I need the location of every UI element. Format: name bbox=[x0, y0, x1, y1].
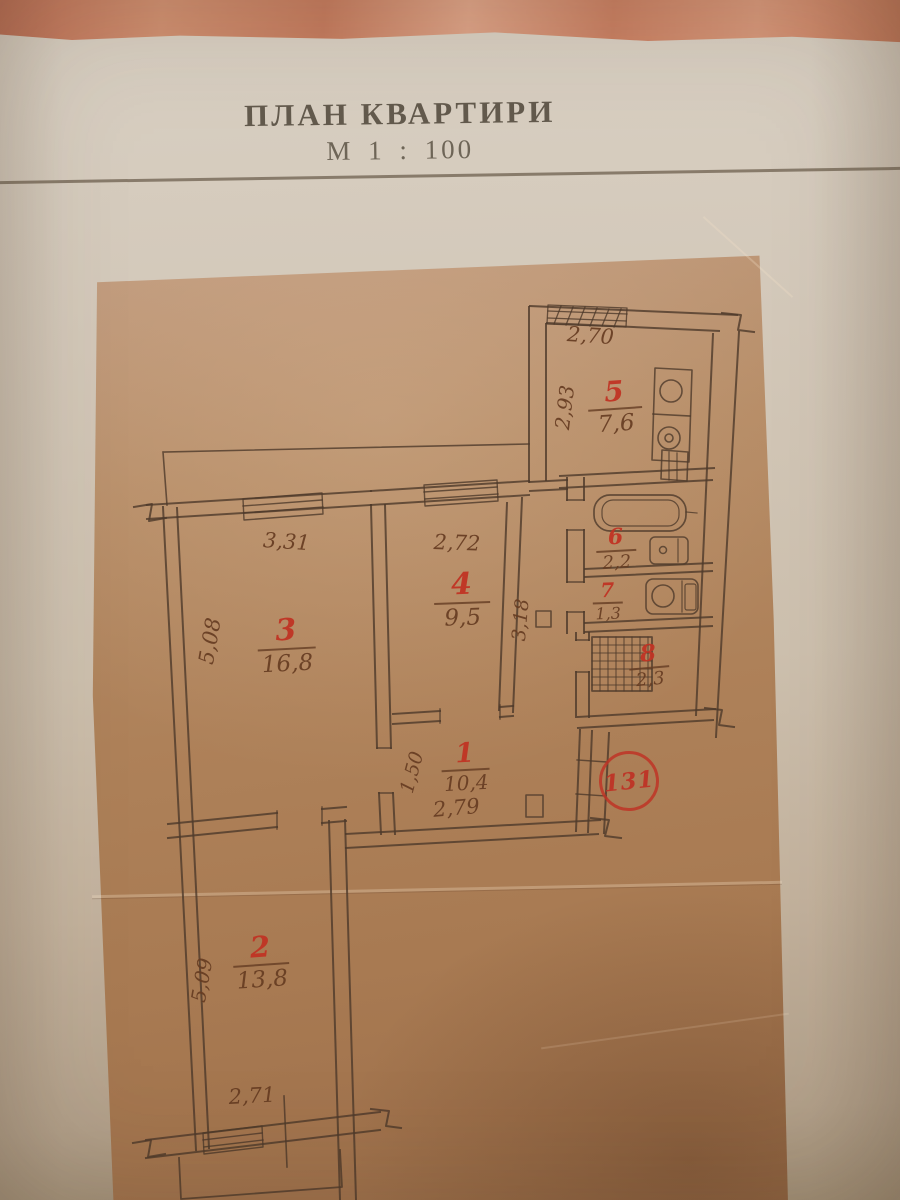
toilet-symbol bbox=[646, 579, 698, 614]
photo-of-floor-plan-document: ПЛАН КВАРТИРИ М 1 : 100 bbox=[0, 0, 900, 1200]
room-7-area: 1,3 bbox=[583, 605, 634, 624]
room-6-number: 6 bbox=[588, 525, 643, 550]
room-1-area: 10,4 bbox=[434, 771, 499, 795]
room-5-area: 7,6 bbox=[582, 410, 650, 439]
room-3-label: 3 16,8 bbox=[250, 614, 323, 678]
dim-hall-width: 2,79 bbox=[432, 794, 481, 822]
walls-room3 bbox=[134, 491, 395, 1150]
dim-kitchen-width: 2,70 bbox=[566, 322, 614, 349]
washbasin-symbol bbox=[650, 537, 688, 564]
room-8-label: 8 2,3 bbox=[620, 640, 678, 692]
room-6-area: 2,2 bbox=[590, 553, 645, 575]
room-2-label: 2 13,8 bbox=[224, 931, 298, 995]
room-1-number: 1 bbox=[432, 738, 497, 768]
dim-room3-width: 3,31 bbox=[262, 528, 310, 555]
dim-room4-depth: 3,18 bbox=[508, 598, 534, 642]
room-5-number: 5 bbox=[580, 376, 648, 409]
room-8-number: 8 bbox=[620, 640, 676, 668]
room-4-area: 9,5 bbox=[427, 605, 498, 632]
room-6-label: 6 2,2 bbox=[588, 525, 644, 575]
room-4-label: 4 9,5 bbox=[426, 569, 498, 632]
kitchen-sink-stove-symbol bbox=[652, 368, 692, 481]
room-3-area: 16,8 bbox=[252, 650, 323, 678]
room-5-label: 5 7,6 bbox=[580, 376, 650, 439]
room-4-number: 4 bbox=[426, 569, 497, 601]
room-2-area: 13,8 bbox=[227, 965, 299, 994]
walls-room2 bbox=[133, 820, 401, 1200]
balcony-outline bbox=[179, 1150, 342, 1199]
dim-room4-width: 2,72 bbox=[433, 530, 481, 556]
room-1-label: 1 10,4 bbox=[432, 738, 499, 795]
room-7-label: 7 1,3 bbox=[582, 579, 633, 624]
apartment-number: 131 bbox=[602, 765, 656, 797]
room-2-number: 2 bbox=[224, 931, 296, 965]
room-7-number: 7 bbox=[582, 579, 633, 601]
room-3-number: 3 bbox=[250, 614, 321, 648]
dim-room2-width: 2,71 bbox=[228, 1083, 276, 1109]
